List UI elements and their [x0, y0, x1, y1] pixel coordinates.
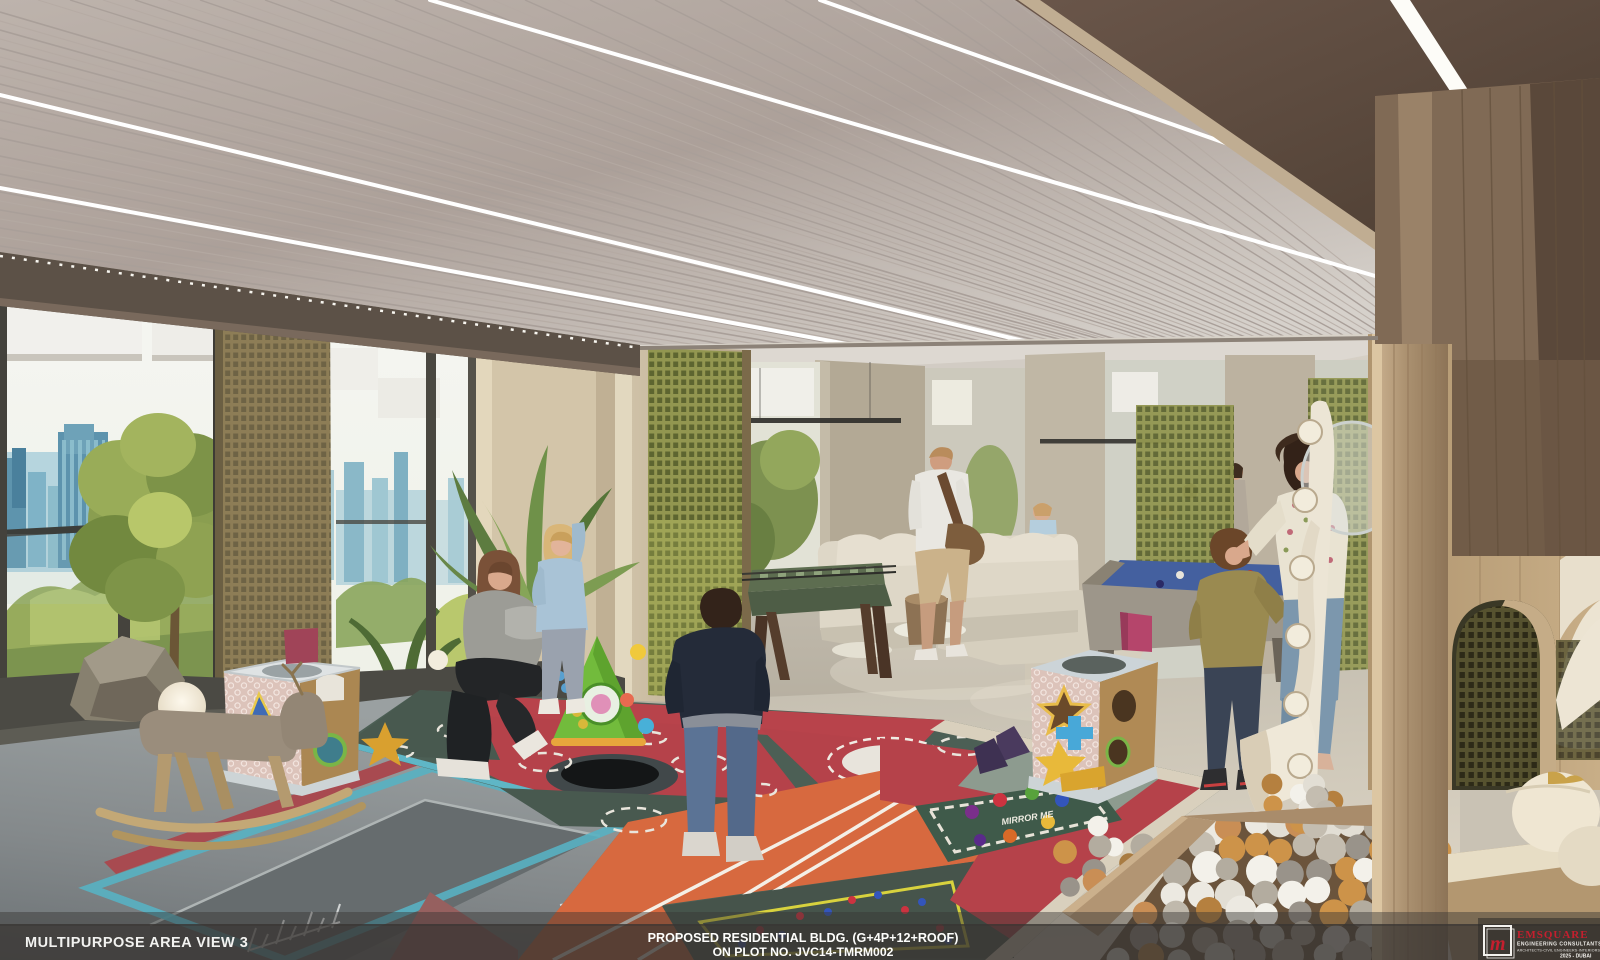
svg-text:ON PLOT NO. JVC14-TMRM002: ON PLOT NO. JVC14-TMRM002 [713, 945, 894, 959]
svg-text:ARCHITECTS-CIVIL ENGINEERS-INT: ARCHITECTS-CIVIL ENGINEERS-INTERIORS [1517, 949, 1600, 953]
svg-text:PROPOSED RESIDENTIAL BLDG. (G+: PROPOSED RESIDENTIAL BLDG. (G+4P+12+ROOF… [648, 931, 959, 945]
svg-text:EMSQUARE: EMSQUARE [1517, 929, 1589, 941]
svg-text:MULTIPURPOSE AREA VIEW 3: MULTIPURPOSE AREA VIEW 3 [25, 935, 248, 951]
svg-text:2025 - DUBAI: 2025 - DUBAI [1560, 954, 1592, 960]
svg-text:m: m [1490, 933, 1506, 955]
svg-text:ENGINEERING CONSULTANTS: ENGINEERING CONSULTANTS [1517, 942, 1600, 948]
